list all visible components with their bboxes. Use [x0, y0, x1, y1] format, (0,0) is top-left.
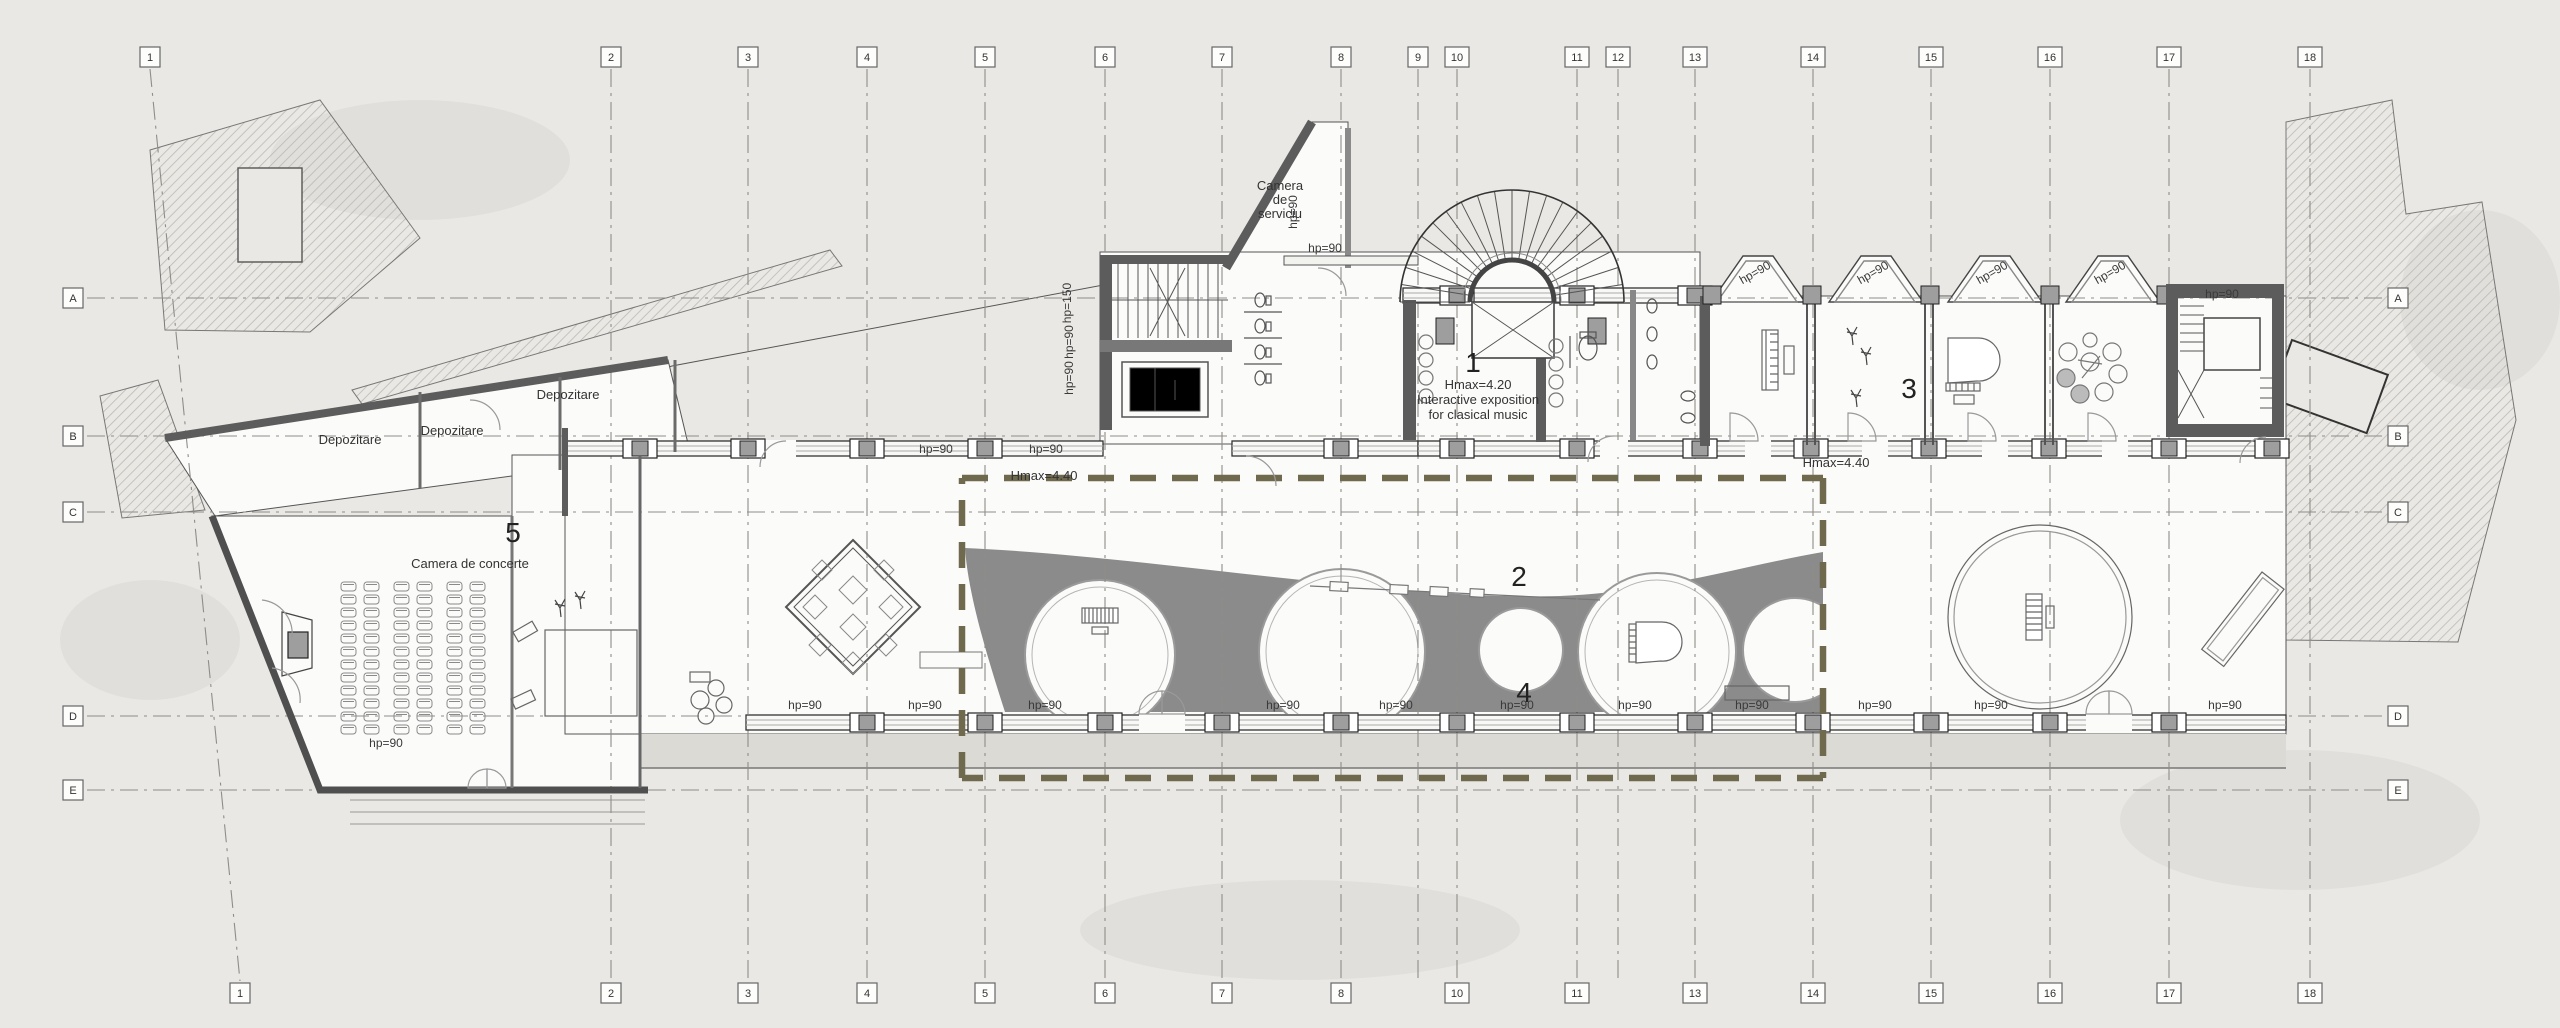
room-number-5: 5 — [505, 517, 521, 548]
room-annotation: Depozitare — [421, 423, 484, 438]
grid-column-bottom-3-label: 3 — [745, 988, 751, 1000]
hp-label-bottom: hp=90 — [1735, 698, 1769, 712]
grid-row-left-E-label: E — [69, 785, 76, 797]
camera-serviciu-label: Camera — [1257, 178, 1304, 193]
grid-column-top-4-label: 4 — [864, 52, 870, 64]
grid-column-top-3-label: 3 — [745, 52, 751, 64]
grid-column-top-13-label: 13 — [1689, 52, 1701, 64]
room-annotation: Interactive exposition — [1417, 392, 1539, 407]
hp-label-bottom: hp=90 — [1266, 698, 1300, 712]
grid-column-top-2-label: 2 — [608, 52, 614, 64]
hp-label-bottom: hp=90 — [1500, 698, 1534, 712]
grid-column-top-10-label: 10 — [1451, 52, 1463, 64]
grid-row-right-B-label: B — [2394, 431, 2401, 443]
grid-column-bottom-17-label: 17 — [2163, 988, 2175, 1000]
grid-column-bottom-8-label: 8 — [1338, 988, 1344, 1000]
hp-label-bottom: hp=90 — [1974, 698, 2008, 712]
grid-column-top-1-label: 1 — [147, 52, 153, 64]
grid-column-top-5-label: 5 — [982, 52, 988, 64]
grid-column-top-14-label: 14 — [1807, 52, 1819, 64]
room-annotation: Hmax=4.20 — [1445, 377, 1512, 392]
floor-plan-drawing: 1122334455667788910101111121313141415151… — [0, 0, 2560, 1028]
grid-column-top-7-label: 7 — [1219, 52, 1225, 64]
grid-column-bottom-6-label: 6 — [1102, 988, 1108, 1000]
grid-column-bottom-10-label: 10 — [1451, 988, 1463, 1000]
grid-row-right-C-label: C — [2394, 507, 2402, 519]
grid-row-left-A-label: A — [69, 293, 77, 305]
entry-niche — [282, 612, 312, 676]
grid-column-bottom-2-label: 2 — [608, 988, 614, 1000]
grid-column-bottom-18-label: 18 — [2304, 988, 2316, 1000]
hp-label-bottom: hp=90 — [1618, 698, 1652, 712]
hp-label: hp=90 — [2205, 287, 2239, 301]
grid-column-top-16-label: 16 — [2044, 52, 2056, 64]
hp-label: hp=90 — [369, 736, 403, 750]
grid-column-top-6-label: 6 — [1102, 52, 1108, 64]
grid-column-bottom-1-label: 1 — [237, 988, 243, 1000]
grid-column-top-15-label: 15 — [1925, 52, 1937, 64]
grid-column-top-17-label: 17 — [2163, 52, 2175, 64]
hp-label-bottom: hp=90 — [2208, 698, 2242, 712]
room-number-1: 1 — [1465, 347, 1481, 378]
floor-plan-page: 1122334455667788910101111121313141415151… — [0, 0, 2560, 1028]
grid-column-top-9-label: 9 — [1415, 52, 1421, 64]
room-number-3: 3 — [1901, 373, 1917, 404]
pod-grand-piano-icon — [1629, 622, 1682, 663]
grid-column-bottom-16-label: 16 — [2044, 988, 2056, 1000]
wall-band — [1418, 439, 1700, 458]
room-annotation: Depozitare — [319, 432, 382, 447]
room-annotation: Hmax=4.40 — [1803, 455, 1870, 470]
grid-column-bottom-11-label: 11 — [1571, 988, 1582, 1000]
room-annotation: Depozitare — [537, 387, 600, 402]
hp-label-vertical: hp=90 — [1286, 195, 1300, 229]
grid-row-right-E-label: E — [2394, 785, 2401, 797]
hp-label-bottom: hp=90 — [788, 698, 822, 712]
room-annotation: Hmax=4.40 — [1011, 468, 1078, 483]
hp-label-top: hp=90 — [1029, 442, 1063, 456]
hp-label: hp=90 — [1308, 241, 1342, 255]
grid-column-top-11-label: 11 — [1571, 52, 1582, 64]
wall-band — [746, 713, 2286, 732]
hp-label-bottom: hp=90 — [1379, 698, 1413, 712]
grid-row-left-D-label: D — [69, 711, 77, 723]
hp-label-top: hp=90 — [919, 442, 953, 456]
hp-label-vertical: hp=90 — [1062, 361, 1076, 395]
hp-label-bottom: hp=90 — [908, 698, 942, 712]
grid-column-top-12-label: 12 — [1612, 52, 1624, 64]
hp-label-vertical: hp=90 — [1062, 325, 1076, 359]
grid-column-bottom-7-label: 7 — [1219, 988, 1225, 1000]
room-number-2: 2 — [1511, 561, 1527, 592]
wall-band — [1683, 439, 2289, 458]
wall-band — [1232, 439, 1418, 458]
grid-row-left-B-label: B — [69, 431, 76, 443]
grid-column-bottom-15-label: 15 — [1925, 988, 1937, 1000]
room-annotation: for clasical music — [1429, 407, 1528, 422]
grid-column-bottom-5-label: 5 — [982, 988, 988, 1000]
hp-label-bottom: hp=90 — [1858, 698, 1892, 712]
hp-label-bottom: hp=90 — [1028, 698, 1062, 712]
grid-column-bottom-13-label: 13 — [1689, 988, 1701, 1000]
grid-column-bottom-14-label: 14 — [1807, 988, 1819, 1000]
grid-column-top-18-label: 18 — [2304, 52, 2316, 64]
wall-band — [565, 439, 1103, 458]
grid-row-left-C-label: C — [69, 507, 77, 519]
neighbor-building-outline — [238, 168, 302, 262]
hp-label-vertical: hp=150 — [1060, 282, 1074, 323]
grid-column-top-8-label: 8 — [1338, 52, 1344, 64]
grid-column-bottom-4-label: 4 — [864, 988, 870, 1000]
grid-row-right-A-label: A — [2394, 293, 2402, 305]
room-annotation: Camera de concerte — [411, 556, 529, 571]
grid-row-right-D-label: D — [2394, 711, 2402, 723]
